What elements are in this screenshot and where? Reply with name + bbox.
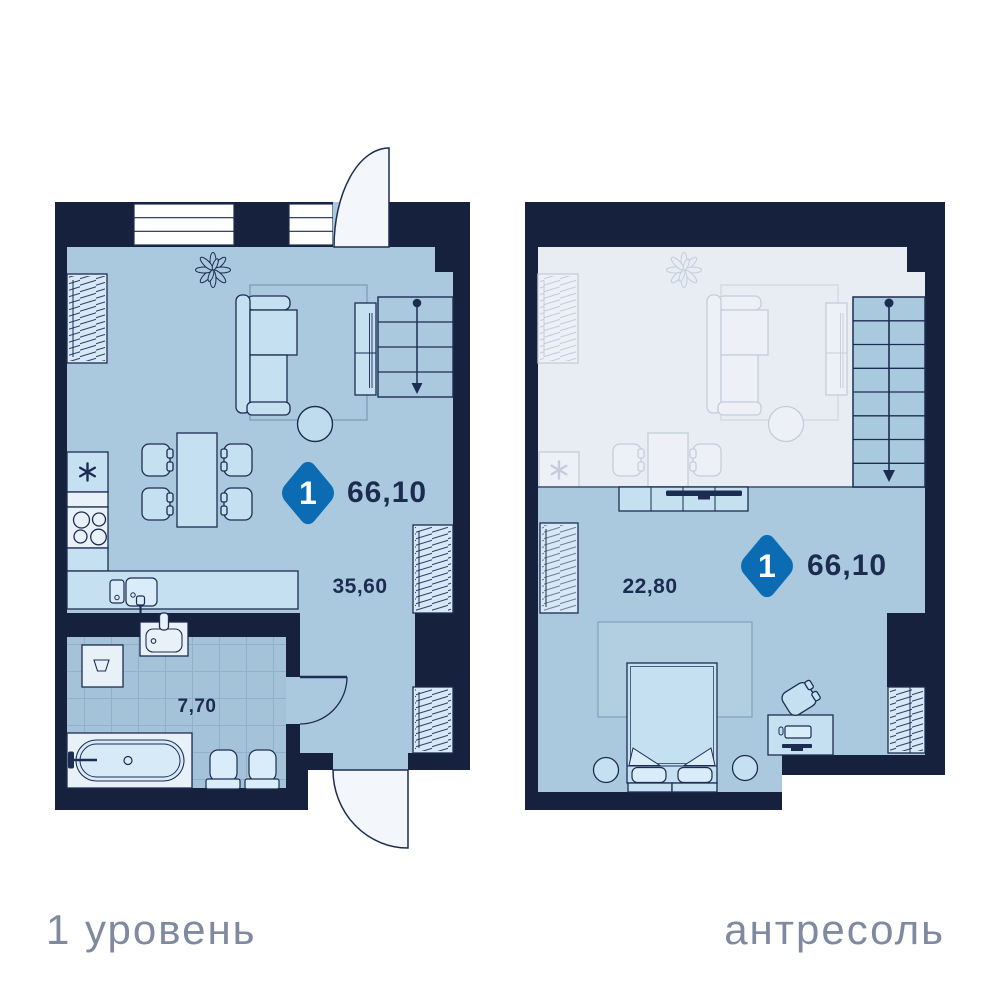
desk xyxy=(768,715,833,755)
entrance-door xyxy=(333,753,408,848)
interior-walls-mezzanine xyxy=(907,247,925,272)
ghost-plant-icon xyxy=(667,253,702,288)
tv xyxy=(666,491,742,497)
bed xyxy=(627,663,717,792)
stove xyxy=(67,507,108,548)
floor-plan-page: 1 66,10 35,60 7,70 1 66,10 22,80 1 урове… xyxy=(0,0,1000,1000)
ghost-dining-chair xyxy=(690,444,721,476)
wardrobe xyxy=(413,525,453,613)
ghost-coffee-table xyxy=(769,407,804,442)
nightstand xyxy=(594,758,619,783)
kitchen-counter xyxy=(67,571,298,613)
dining-chair xyxy=(142,488,173,520)
dining-chair xyxy=(221,444,252,476)
wardrobe xyxy=(67,274,107,363)
nightstand xyxy=(733,756,758,781)
window xyxy=(134,204,234,245)
toilet xyxy=(206,750,240,789)
bathtub xyxy=(67,733,192,788)
total-area-level1: 66,10 xyxy=(347,478,427,508)
balcony-door xyxy=(333,148,389,247)
dining-table xyxy=(177,433,217,527)
wardrobe xyxy=(413,687,453,753)
room-area-bathroom: 7,70 xyxy=(147,697,247,717)
ghost-stair-cabinet xyxy=(826,303,847,395)
plant-icon xyxy=(196,253,231,288)
room-area-living-kitchen: 35,60 xyxy=(300,576,420,597)
ghost-wardrobe xyxy=(538,274,578,363)
washing-machine xyxy=(82,645,123,687)
floor-plan-mezzanine xyxy=(525,202,945,810)
floor-plans-drawing xyxy=(0,0,1000,1000)
pillow xyxy=(678,768,712,783)
staircase xyxy=(355,297,453,397)
wardrobe xyxy=(540,523,578,613)
tv-console xyxy=(619,487,748,511)
room-area-bedroom: 22,80 xyxy=(590,576,710,597)
interior-walls-mezzanine xyxy=(887,613,925,687)
ghost-dining-chair xyxy=(613,444,644,476)
plan-title-level1: 1 уровень xyxy=(46,908,257,952)
plan-title-mezzanine: антресоль xyxy=(724,908,945,952)
ghost-refrigerator xyxy=(539,452,579,487)
bidet xyxy=(245,750,279,789)
laptop xyxy=(785,726,811,738)
wardrobe xyxy=(888,687,925,753)
dining-chair xyxy=(142,444,173,476)
staircase xyxy=(853,297,925,487)
pillow xyxy=(632,768,666,783)
ghost-dining-table xyxy=(648,433,688,487)
refrigerator xyxy=(67,452,108,492)
badge-number: 1 xyxy=(758,550,776,582)
badge-number: 1 xyxy=(299,477,317,509)
window xyxy=(289,204,333,245)
coffee-table xyxy=(298,407,333,442)
kitchen-cabinet xyxy=(67,492,108,507)
kitchen-cabinet xyxy=(67,548,108,571)
dining-chair xyxy=(221,488,252,520)
total-area-mezzanine: 66,10 xyxy=(807,551,887,581)
